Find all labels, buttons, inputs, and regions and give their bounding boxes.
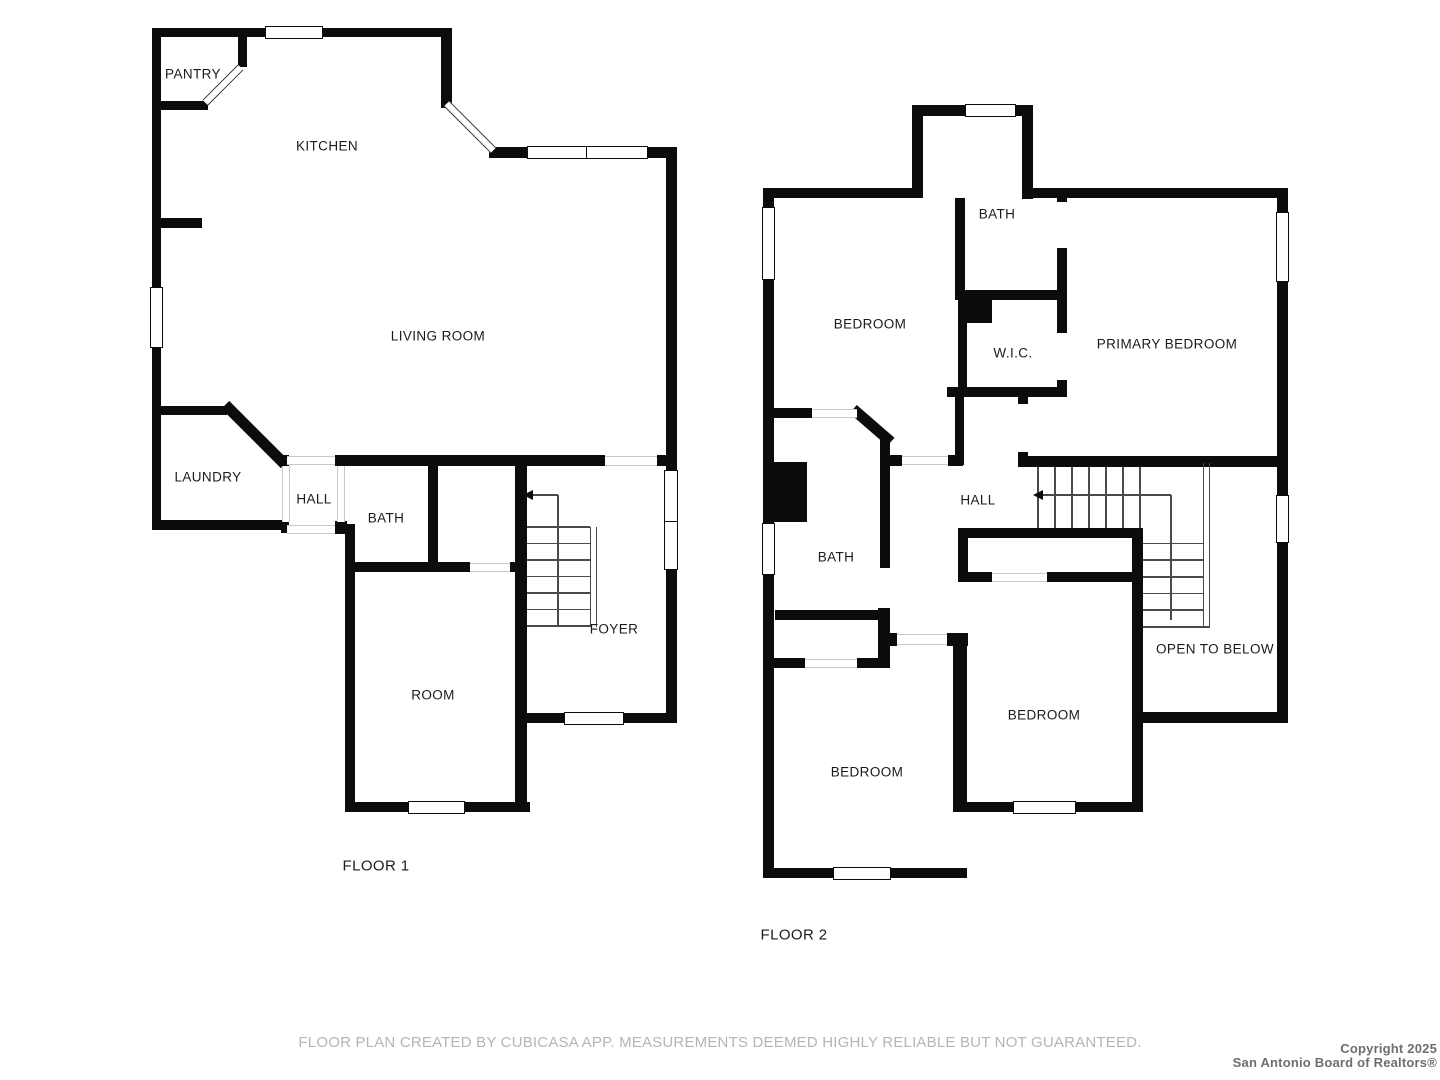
copyright-notice: Copyright 2025 San Antonio Board of Real… (1233, 1042, 1437, 1070)
door-opening (805, 659, 857, 668)
wall (657, 455, 677, 466)
room-label-hall: HALL (296, 492, 331, 507)
door-opening (287, 456, 335, 465)
door-opening (897, 634, 947, 645)
wall (763, 188, 913, 198)
door-opening (902, 456, 948, 465)
copyright-line2: San Antonio Board of Realtors® (1233, 1056, 1437, 1070)
wall (912, 105, 923, 198)
window (965, 104, 1016, 117)
stair-tread (1139, 467, 1140, 528)
stair-direction-arrow (1033, 490, 1043, 500)
wall (335, 455, 605, 466)
wall (763, 658, 805, 668)
wall (1047, 572, 1133, 582)
wall (763, 408, 812, 418)
window (833, 867, 891, 880)
wall (953, 633, 967, 812)
room-label-w-i-c-: W.I.C. (993, 346, 1032, 361)
window (762, 523, 775, 575)
stair-tread (1143, 543, 1203, 544)
door-opening (287, 525, 335, 534)
window (664, 470, 678, 570)
window (408, 801, 465, 814)
wall (428, 465, 438, 567)
door-opening (337, 466, 345, 522)
wall (441, 28, 452, 108)
room-label-primary-bedroom: PRIMARY BEDROOM (1097, 337, 1238, 352)
wall (1057, 248, 1067, 333)
door-opening (605, 456, 657, 466)
stair-direction-arrow (523, 490, 533, 500)
window-divider (665, 521, 677, 522)
room-label-bedroom: BEDROOM (834, 317, 907, 332)
room-label-bath: BATH (979, 207, 1016, 222)
room-label-bedroom: BEDROOM (1008, 708, 1081, 723)
stair-tread (1088, 467, 1089, 528)
wall (857, 658, 888, 668)
wall (1140, 712, 1288, 723)
stair-tread (1143, 559, 1203, 560)
stair-tread (1122, 467, 1123, 528)
stair-direction-line (1042, 494, 1171, 495)
wall (775, 610, 882, 620)
stair-tread (1054, 467, 1055, 528)
stair-tread (1143, 593, 1203, 594)
room-label-living-room: LIVING ROOM (391, 329, 485, 344)
room-label-foyer: FOYER (590, 622, 639, 637)
floor-title: FLOOR 1 (343, 858, 410, 875)
floor-title: FLOOR 2 (761, 927, 828, 944)
room-label-bath: BATH (818, 550, 855, 565)
wall (345, 524, 355, 812)
window (1276, 495, 1289, 543)
stair-stringer (1203, 463, 1210, 628)
stair-tread (1105, 467, 1106, 528)
door-opening (470, 563, 510, 572)
window (150, 287, 163, 348)
wall (152, 520, 283, 530)
wall (666, 147, 677, 723)
window (1276, 212, 1289, 282)
disclaimer-text: FLOOR PLAN CREATED BY CUBICASA APP. MEAS… (298, 1034, 1141, 1051)
wall (515, 455, 527, 812)
window (564, 712, 624, 725)
room-label-kitchen: KITCHEN (296, 139, 358, 154)
stair-tread (1071, 467, 1072, 528)
room-label-room: ROOM (411, 688, 455, 703)
window (265, 26, 323, 39)
wall (238, 28, 247, 67)
wall (958, 572, 992, 582)
copyright-line1: Copyright 2025 (1233, 1042, 1437, 1056)
stair-direction-line (1170, 495, 1171, 620)
floorplan-page: PANTRYKITCHENLIVING ROOMLAUNDRYHALLBATHF… (0, 0, 1440, 1080)
stair-tread (1143, 609, 1203, 610)
solid-wall-block (763, 462, 807, 522)
room-label-open-to-below: OPEN TO BELOW (1156, 642, 1274, 657)
wall (1018, 395, 1028, 404)
wall (152, 101, 208, 110)
wall (948, 455, 963, 466)
stair-direction-line (557, 495, 558, 626)
window (1013, 801, 1076, 814)
wall (345, 562, 470, 572)
room-label-bath: BATH (368, 511, 405, 526)
wall (947, 633, 968, 646)
door-opening (812, 409, 857, 418)
wall (947, 387, 1067, 397)
room-label-laundry: LAUNDRY (174, 470, 241, 485)
window-divider (586, 147, 587, 158)
stair-stringer (590, 527, 597, 627)
window (527, 146, 648, 159)
stair-direction-line (532, 494, 558, 495)
solid-wall-block (958, 295, 992, 323)
room-label-bedroom: BEDROOM (831, 765, 904, 780)
wall (1018, 456, 1288, 467)
wall (955, 198, 965, 293)
wall (1057, 190, 1067, 202)
room-label-hall: HALL (960, 493, 995, 508)
door-opening (282, 466, 290, 522)
wall (958, 528, 1133, 538)
wall (160, 218, 202, 228)
door-opening (992, 573, 1047, 582)
wall (1132, 528, 1143, 812)
room-label-pantry: PANTRY (165, 67, 221, 82)
wall (880, 455, 902, 466)
wall (1057, 380, 1067, 392)
stair-tread (1143, 576, 1203, 577)
wall (152, 406, 227, 415)
diagonal-door-opening (444, 101, 496, 153)
diagonal-wall (221, 400, 288, 467)
wall (880, 633, 897, 646)
wall (1022, 105, 1033, 199)
stair-tread (1143, 626, 1210, 627)
window (762, 207, 775, 280)
